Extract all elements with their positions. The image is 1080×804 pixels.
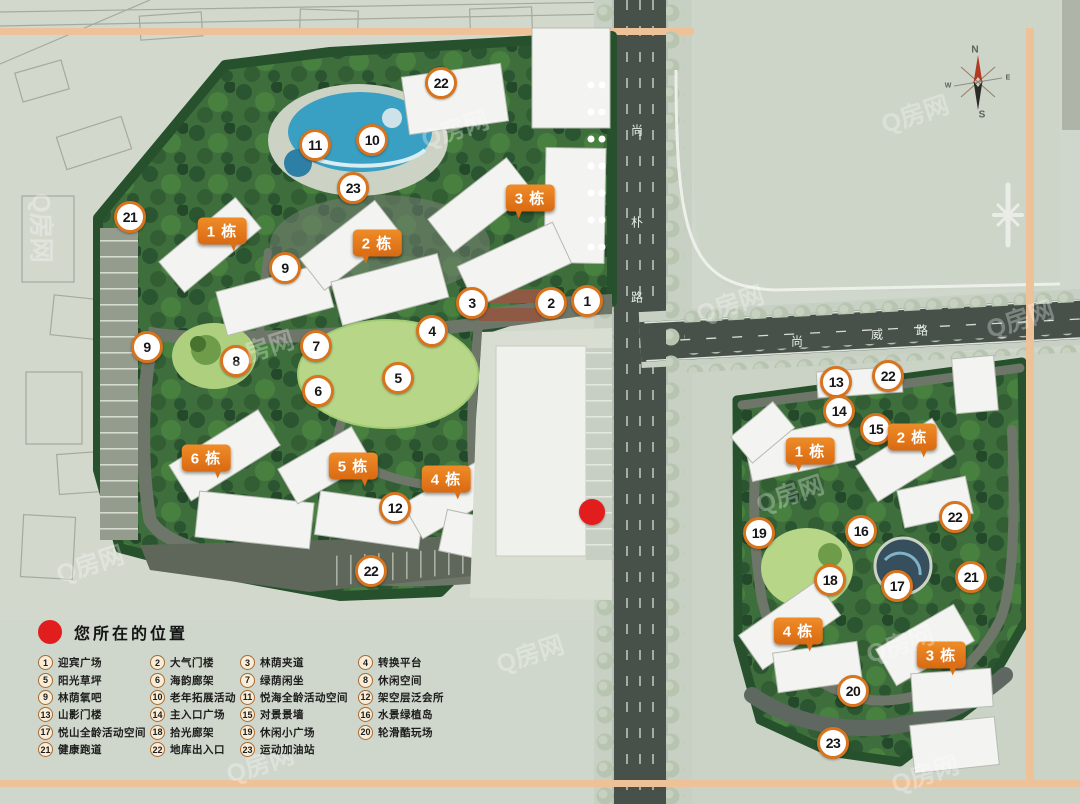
legend-item-18: 18拾光廊架 — [150, 725, 240, 740]
legend-item-label: 转换平台 — [378, 655, 422, 670]
legend-item-23: 23运动加油站 — [240, 742, 358, 757]
legend-item-number: 22 — [150, 742, 165, 757]
legend-item-label: 阳光草坪 — [58, 673, 102, 688]
legend-item-number: 16 — [358, 707, 373, 722]
legend-item-12: 12架空层泛会所 — [358, 690, 498, 705]
compass-east-label: E — [1006, 75, 1011, 82]
legend-item-label: 老年拓展活动 — [170, 690, 236, 705]
legend-item-number: 3 — [240, 655, 255, 670]
legend: 1迎宾广场2大气门楼3林荫夹道4转换平台5阳光草坪6海韵廊架7绿荫闲坐8休闲空间… — [38, 654, 538, 758]
legend-item-number: 11 — [240, 690, 255, 705]
map-marker-18: 18 — [814, 564, 846, 596]
map-marker-5: 5 — [382, 362, 414, 394]
map-marker-13: 13 — [820, 366, 852, 398]
legend-item-3: 3林荫夹道 — [240, 655, 358, 670]
building-label-pointer — [513, 205, 525, 225]
map-marker-16: 16 — [845, 515, 877, 547]
map-marker-10: 10 — [356, 124, 388, 156]
map-marker-12: 12 — [379, 492, 411, 524]
building-label-pointer — [946, 662, 958, 682]
legend-item-label: 运动加油站 — [260, 742, 315, 757]
legend-item-number: 23 — [240, 742, 255, 757]
legend-item-label: 水景绿植岛 — [378, 707, 433, 722]
legend-item-label: 海韵廊架 — [170, 673, 214, 688]
building-label-pointer — [360, 250, 372, 270]
legend-title: 您所在的位置 — [74, 620, 188, 644]
road-name-char: 尚 — [791, 333, 803, 350]
legend-item-label: 悦山全龄活动空间 — [58, 725, 146, 740]
legend-item-19: 19休闲小广场 — [240, 725, 358, 740]
legend-item-number: 5 — [38, 673, 53, 688]
legend-item-1: 1迎宾广场 — [38, 655, 150, 670]
legend-item-17: 17悦山全龄活动空间 — [38, 725, 150, 740]
map-marker-20: 20 — [837, 675, 869, 707]
map-marker-4: 4 — [416, 315, 448, 347]
legend-item-label: 健康跑道 — [58, 742, 102, 757]
building-label-pointer — [803, 638, 815, 658]
map-marker-2: 2 — [535, 287, 567, 319]
map-marker-1: 1 — [571, 285, 603, 317]
road-name-char: 路 — [916, 322, 928, 339]
you-are-here-dot — [579, 499, 605, 525]
frame-line-right — [1026, 28, 1034, 785]
map-marker-21: 21 — [114, 201, 146, 233]
map-marker-21: 21 — [955, 561, 987, 593]
legend-item-22: 22地库出入口 — [150, 742, 240, 757]
legend-item-number: 14 — [150, 707, 165, 722]
road-name-char: 路 — [631, 289, 643, 306]
map-marker-22: 22 — [355, 555, 387, 587]
legend-title-row: 您所在的位置 — [38, 620, 188, 644]
building-label: 1 栋 — [786, 438, 835, 465]
legend-item-number: 6 — [150, 673, 165, 688]
building-label-pointer — [917, 444, 929, 464]
building-label-pointer — [227, 238, 239, 258]
legend-item-label: 大气门楼 — [170, 655, 214, 670]
legend-item-14: 14主入口广场 — [150, 707, 240, 722]
road-name-char: 朴 — [631, 214, 643, 231]
map-marker-11: 11 — [299, 129, 331, 161]
legend-item-11: 11悦海全龄活动空间 — [240, 690, 358, 705]
map-marker-22: 22 — [872, 360, 904, 392]
legend-item-label: 休闲小广场 — [260, 725, 315, 740]
legend-red-dot-icon — [38, 620, 62, 644]
building-label-pointer — [211, 465, 223, 485]
building-label: 2 栋 — [888, 424, 937, 451]
legend-item-21: 21健康跑道 — [38, 742, 150, 757]
map-marker-6: 6 — [302, 375, 334, 407]
map-marker-9: 9 — [269, 252, 301, 284]
legend-item-number: 17 — [38, 725, 53, 740]
road-name-char: 尚 — [631, 122, 643, 139]
building-label: 4 栋 — [774, 618, 823, 645]
school-lot — [470, 328, 612, 600]
legend-item-label: 绿荫闲坐 — [260, 673, 304, 688]
compass-west-label: W — [945, 83, 952, 90]
legend-item-label: 对景景墙 — [260, 707, 304, 722]
building-label: 2 栋 — [353, 230, 402, 257]
legend-item-16: 16水景绿植岛 — [358, 707, 498, 722]
road-name-char: 威 — [871, 326, 883, 343]
legend-item-label: 架空层泛会所 — [378, 690, 444, 705]
legend-item-number: 19 — [240, 725, 255, 740]
map-marker-14: 14 — [823, 395, 855, 427]
map-marker-23: 23 — [817, 727, 849, 759]
frame-line-bottom — [0, 780, 1080, 787]
legend-item-label: 迎宾广场 — [58, 655, 102, 670]
building-label: 3 栋 — [917, 642, 966, 669]
legend-item-15: 15对景景墙 — [240, 707, 358, 722]
legend-item-5: 5阳光草坪 — [38, 673, 150, 688]
legend-item-number: 1 — [38, 655, 53, 670]
legend-item-number: 15 — [240, 707, 255, 722]
legend-item-number: 9 — [38, 690, 53, 705]
legend-item-10: 10老年拓展活动 — [150, 690, 240, 705]
legend-item-number: 7 — [240, 673, 255, 688]
legend-item-label: 拾光廊架 — [170, 725, 214, 740]
legend-item-number: 8 — [358, 673, 373, 688]
legend-item-4: 4转换平台 — [358, 655, 498, 670]
building-label: 5 栋 — [329, 453, 378, 480]
building-label-pointer — [358, 473, 370, 493]
map-marker-8: 8 — [220, 345, 252, 377]
legend-item-label: 山影门楼 — [58, 707, 102, 722]
legend-item-number: 4 — [358, 655, 373, 670]
legend-item-number: 13 — [38, 707, 53, 722]
legend-item-9: 9林荫氧吧 — [38, 690, 150, 705]
legend-item-label: 林荫氧吧 — [58, 690, 102, 705]
legend-item-6: 6海韵廊架 — [150, 673, 240, 688]
legend-item-number: 10 — [150, 690, 165, 705]
legend-item-number: 18 — [150, 725, 165, 740]
map-marker-7: 7 — [300, 330, 332, 362]
legend-item-number: 2 — [150, 655, 165, 670]
map-marker-22: 22 — [939, 501, 971, 533]
legend-item-2: 2大气门楼 — [150, 655, 240, 670]
compass-north-label: N — [971, 45, 978, 56]
map-marker-22: 22 — [425, 67, 457, 99]
legend-item-number: 21 — [38, 742, 53, 757]
map-marker-19: 19 — [743, 517, 775, 549]
legend-item-7: 7绿荫闲坐 — [240, 673, 358, 688]
site-plan-canvas: 尚朴路 尚威路 N S W E 212211102393214798561222… — [0, 0, 1080, 804]
building-label-pointer — [451, 486, 463, 506]
building-label: 3 栋 — [506, 185, 555, 212]
legend-item-label: 休闲空间 — [378, 673, 422, 688]
legend-item-label: 林荫夹道 — [260, 655, 304, 670]
map-marker-3: 3 — [456, 287, 488, 319]
legend-item-20: 20轮滑酷玩场 — [358, 725, 498, 740]
map-marker-17: 17 — [881, 570, 913, 602]
legend-item-label: 地库出入口 — [170, 742, 225, 757]
legend-item-8: 8休闲空间 — [358, 673, 498, 688]
building-label-pointer — [793, 458, 805, 478]
legend-item-label: 悦海全龄活动空间 — [260, 690, 348, 705]
legend-item-number: 20 — [358, 725, 373, 740]
map-marker-23: 23 — [337, 172, 369, 204]
building-label: 1 栋 — [198, 218, 247, 245]
map-marker-9: 9 — [131, 331, 163, 363]
building-label: 4 栋 — [422, 466, 471, 493]
compass-south-label: S — [979, 110, 986, 121]
legend-item-label: 主入口广场 — [170, 707, 225, 722]
legend-item-number: 12 — [358, 690, 373, 705]
legend-item-label: 轮滑酷玩场 — [378, 725, 433, 740]
legend-item-13: 13山影门楼 — [38, 707, 150, 722]
building-label: 6 栋 — [182, 445, 231, 472]
